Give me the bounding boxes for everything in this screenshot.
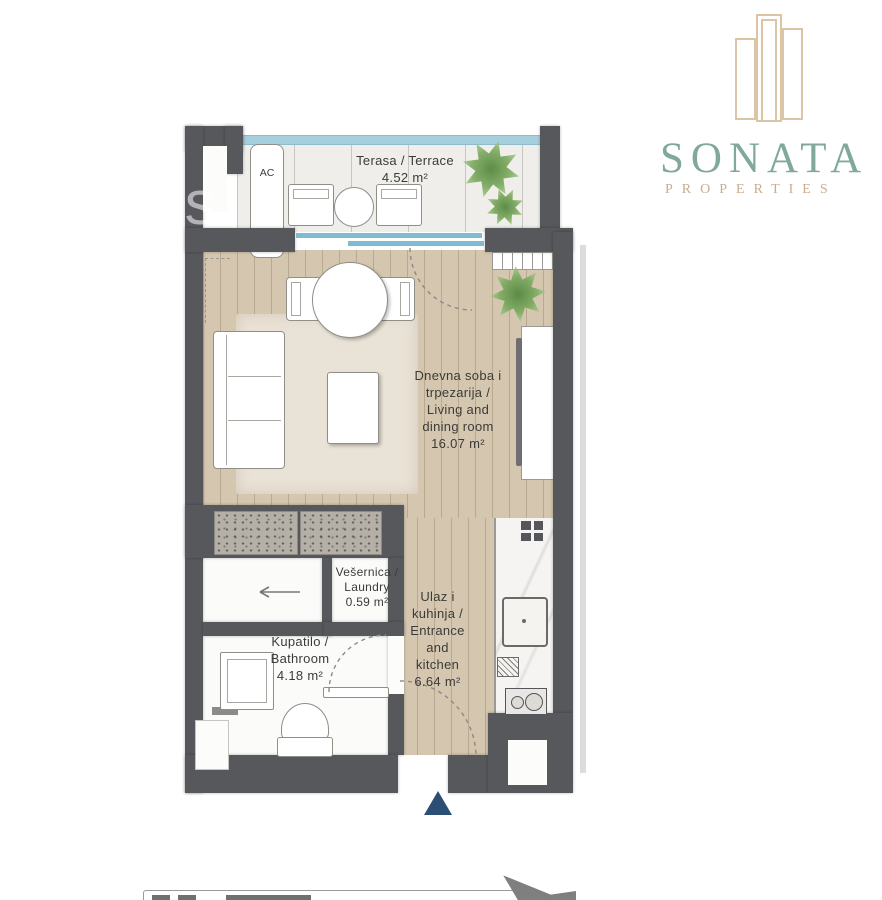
entrance-marker-icon bbox=[424, 791, 452, 815]
sofa-icon bbox=[213, 331, 285, 469]
toilet-tank-icon bbox=[277, 737, 333, 757]
bathroom-door-leaf bbox=[323, 687, 389, 698]
wall-niche-bottom-right bbox=[508, 740, 547, 785]
terrace-label: Terasa / Terrace 4.52 m² bbox=[315, 152, 495, 186]
shower-area-floor bbox=[203, 558, 322, 622]
wardrobe-panel-left bbox=[214, 511, 298, 555]
wall-ac-niche bbox=[225, 126, 243, 174]
appliance-icon bbox=[497, 657, 519, 677]
dining-table-icon bbox=[312, 262, 388, 338]
sink-icon bbox=[502, 597, 548, 647]
terrace-chair-right-icon bbox=[376, 184, 422, 226]
building-edge-line bbox=[580, 245, 586, 773]
bathroom-label: Kupatilo / Bathroom 4.18 m² bbox=[245, 633, 355, 684]
shelf-icon bbox=[492, 252, 555, 270]
ac-label: AC bbox=[251, 167, 283, 179]
sliding-door-track-1 bbox=[296, 233, 482, 238]
wall-niche-bottom-left bbox=[195, 720, 229, 770]
wall-terrace-right bbox=[540, 126, 560, 232]
terrace-table-icon bbox=[334, 187, 374, 227]
coffee-table-icon bbox=[327, 372, 379, 444]
floorplan-page: AC Terasa / Terrace 4.52 m² Dnevna soba … bbox=[0, 0, 882, 900]
north-arrow-tail-icon bbox=[548, 891, 576, 900]
brand-building-icon bbox=[731, 14, 803, 120]
living-room-label: Dnevna soba i trpezarija / Living and di… bbox=[396, 367, 520, 452]
watermark-text: rs bbox=[162, 168, 218, 239]
scale-bar bbox=[143, 890, 523, 900]
dashed-utility-mark bbox=[205, 258, 230, 323]
wardrobe-panel-right bbox=[300, 511, 382, 555]
wall-bottom-middle bbox=[448, 755, 488, 793]
laundry-label: Vešernica / Laundry 0.59 m² bbox=[312, 565, 422, 610]
tv-cabinet-icon bbox=[521, 326, 555, 480]
sliding-door-track-2 bbox=[348, 241, 484, 246]
wall-right bbox=[553, 232, 573, 713]
brand-name: SONATA bbox=[660, 134, 868, 183]
brand-tagline: PROPERTIES bbox=[665, 182, 837, 198]
terrace-chair-left-icon bbox=[288, 184, 334, 226]
cooktop-icon bbox=[505, 688, 547, 715]
terrace-railing bbox=[243, 135, 540, 145]
vent-grid-icon bbox=[521, 521, 543, 541]
